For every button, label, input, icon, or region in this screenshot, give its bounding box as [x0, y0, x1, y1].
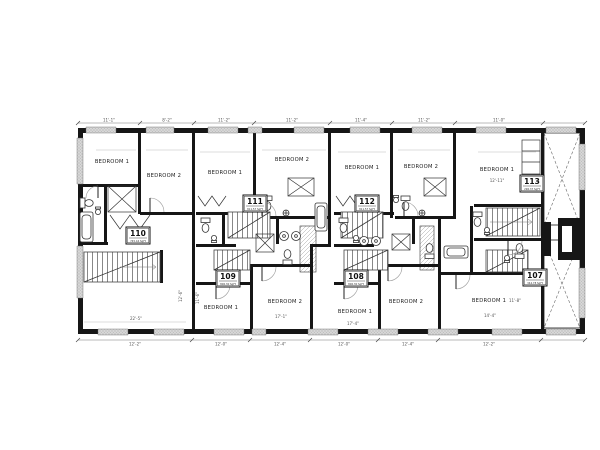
toilet-symbol [401, 196, 410, 210]
shelf-unit [522, 140, 540, 174]
dimension-label: 11'-6" [195, 292, 200, 304]
bathtub-symbol [315, 203, 327, 231]
toilet-symbol [283, 250, 292, 265]
room-label: BEDROOM 2 [268, 299, 302, 305]
sink-symbol [353, 235, 358, 242]
unit-tag-107: 107 344.78 SqFt [523, 269, 547, 286]
dimension-label: 12'-4" [402, 342, 414, 347]
unit-tags: 110 745.44 SqFt 111 811.57 SqFt 112 811.… [126, 175, 547, 287]
bathtub-symbol [444, 246, 468, 258]
unit-area: 745.44 SqFt [130, 239, 146, 243]
shelf-dividers [522, 151, 540, 162]
room-label: BEDROOM 1 [472, 298, 506, 304]
unit-tag-108: 108 806.30 SqFt [344, 270, 368, 287]
unit-area: 296.37 SqFt [524, 187, 540, 191]
dimension-label: 12'-2" [483, 342, 495, 347]
unit-number: 113 [524, 177, 540, 186]
room-label: BEDROOM 2 [275, 157, 309, 163]
unit-area: 811.57 SqFt [359, 207, 375, 211]
unit-number: 110 [130, 229, 146, 238]
toilet-symbol [201, 218, 210, 232]
sink-symbol [95, 207, 100, 215]
sink-symbol [393, 196, 398, 203]
shaft-box-top [544, 133, 580, 225]
room-label: BEDROOM 1 [338, 309, 372, 315]
unit-area: 806.30 SqFt [220, 282, 236, 286]
unit-tag-111: 111 811.57 SqFt [243, 195, 267, 212]
dimension-label: 12'-0" [338, 342, 350, 347]
dimension-label: 11'-8" [509, 298, 521, 303]
unit-tag-113: 113 296.37 SqFt [520, 175, 544, 192]
unit-area: 811.57 SqFt [247, 207, 263, 211]
unit-tag-112: 112 811.57 SqFt [355, 195, 379, 212]
unit-number: 111 [247, 197, 263, 206]
unit-number: 109 [220, 272, 236, 281]
sink-symbol [504, 255, 509, 262]
floor-plan-drawing: 11'-1" 8'-2" 11'-2" 11'-2" 11'-4" 11'-2"… [0, 0, 600, 450]
room-label: BEDROOM 1 [208, 170, 242, 176]
dimension-label: 11'-2" [418, 118, 430, 123]
dimension-label: 11'-2" [218, 118, 230, 123]
room-label: BEDROOM 2 [147, 173, 181, 179]
dimension-label: 11'-1" [103, 118, 115, 123]
dimension-label: 12'-0" [215, 342, 227, 347]
toilet-symbol [80, 198, 93, 208]
dimension-label: 12'-2" [129, 342, 141, 347]
dimension-label: 8'-2" [162, 118, 172, 123]
unit-area: 806.30 SqFt [348, 282, 364, 286]
unit-number: 107 [527, 271, 543, 280]
closets [108, 140, 540, 252]
dimension-label: 11'-2" [286, 118, 298, 123]
room-label: BEDROOM 2 [389, 299, 423, 305]
unit-number: 108 [348, 272, 364, 281]
room-label: BEDROOM 1 [345, 165, 379, 171]
bathtub-symbol [80, 212, 93, 242]
sink-symbol [484, 227, 489, 234]
unit-tag-110: 110 745.44 SqFt [126, 227, 150, 244]
dimension-label: 22'-5" [130, 316, 142, 321]
dimension-label: 12'-11" [490, 178, 505, 183]
dimension-label: 12'-6" [178, 290, 183, 302]
room-label: BEDROOM 1 [480, 167, 514, 173]
dimension-label: 17'-4" [347, 321, 359, 326]
room-label: BEDROOM 1 [95, 159, 129, 165]
unit-tag-109: 109 806.30 SqFt [216, 270, 240, 287]
unit-number: 112 [359, 197, 375, 206]
floor-plan-page: 11'-1" 8'-2" 11'-2" 11'-2" 11'-4" 11'-2"… [0, 0, 600, 450]
dimension-label: 11'-4" [355, 118, 367, 123]
room-label: BEDROOM 2 [404, 164, 438, 170]
unit-area: 344.78 SqFt [527, 281, 543, 285]
dimension-label: 12'-4" [274, 342, 286, 347]
dimension-label: 11'-0" [493, 118, 505, 123]
room-label: BEDROOM 1 [204, 305, 238, 311]
dimension-label: 17'-1" [275, 314, 287, 319]
chimney-flue [562, 226, 572, 252]
dimension-label: 14'-4" [484, 313, 496, 318]
sink-symbol [211, 235, 216, 242]
toilet-symbol [473, 212, 482, 226]
